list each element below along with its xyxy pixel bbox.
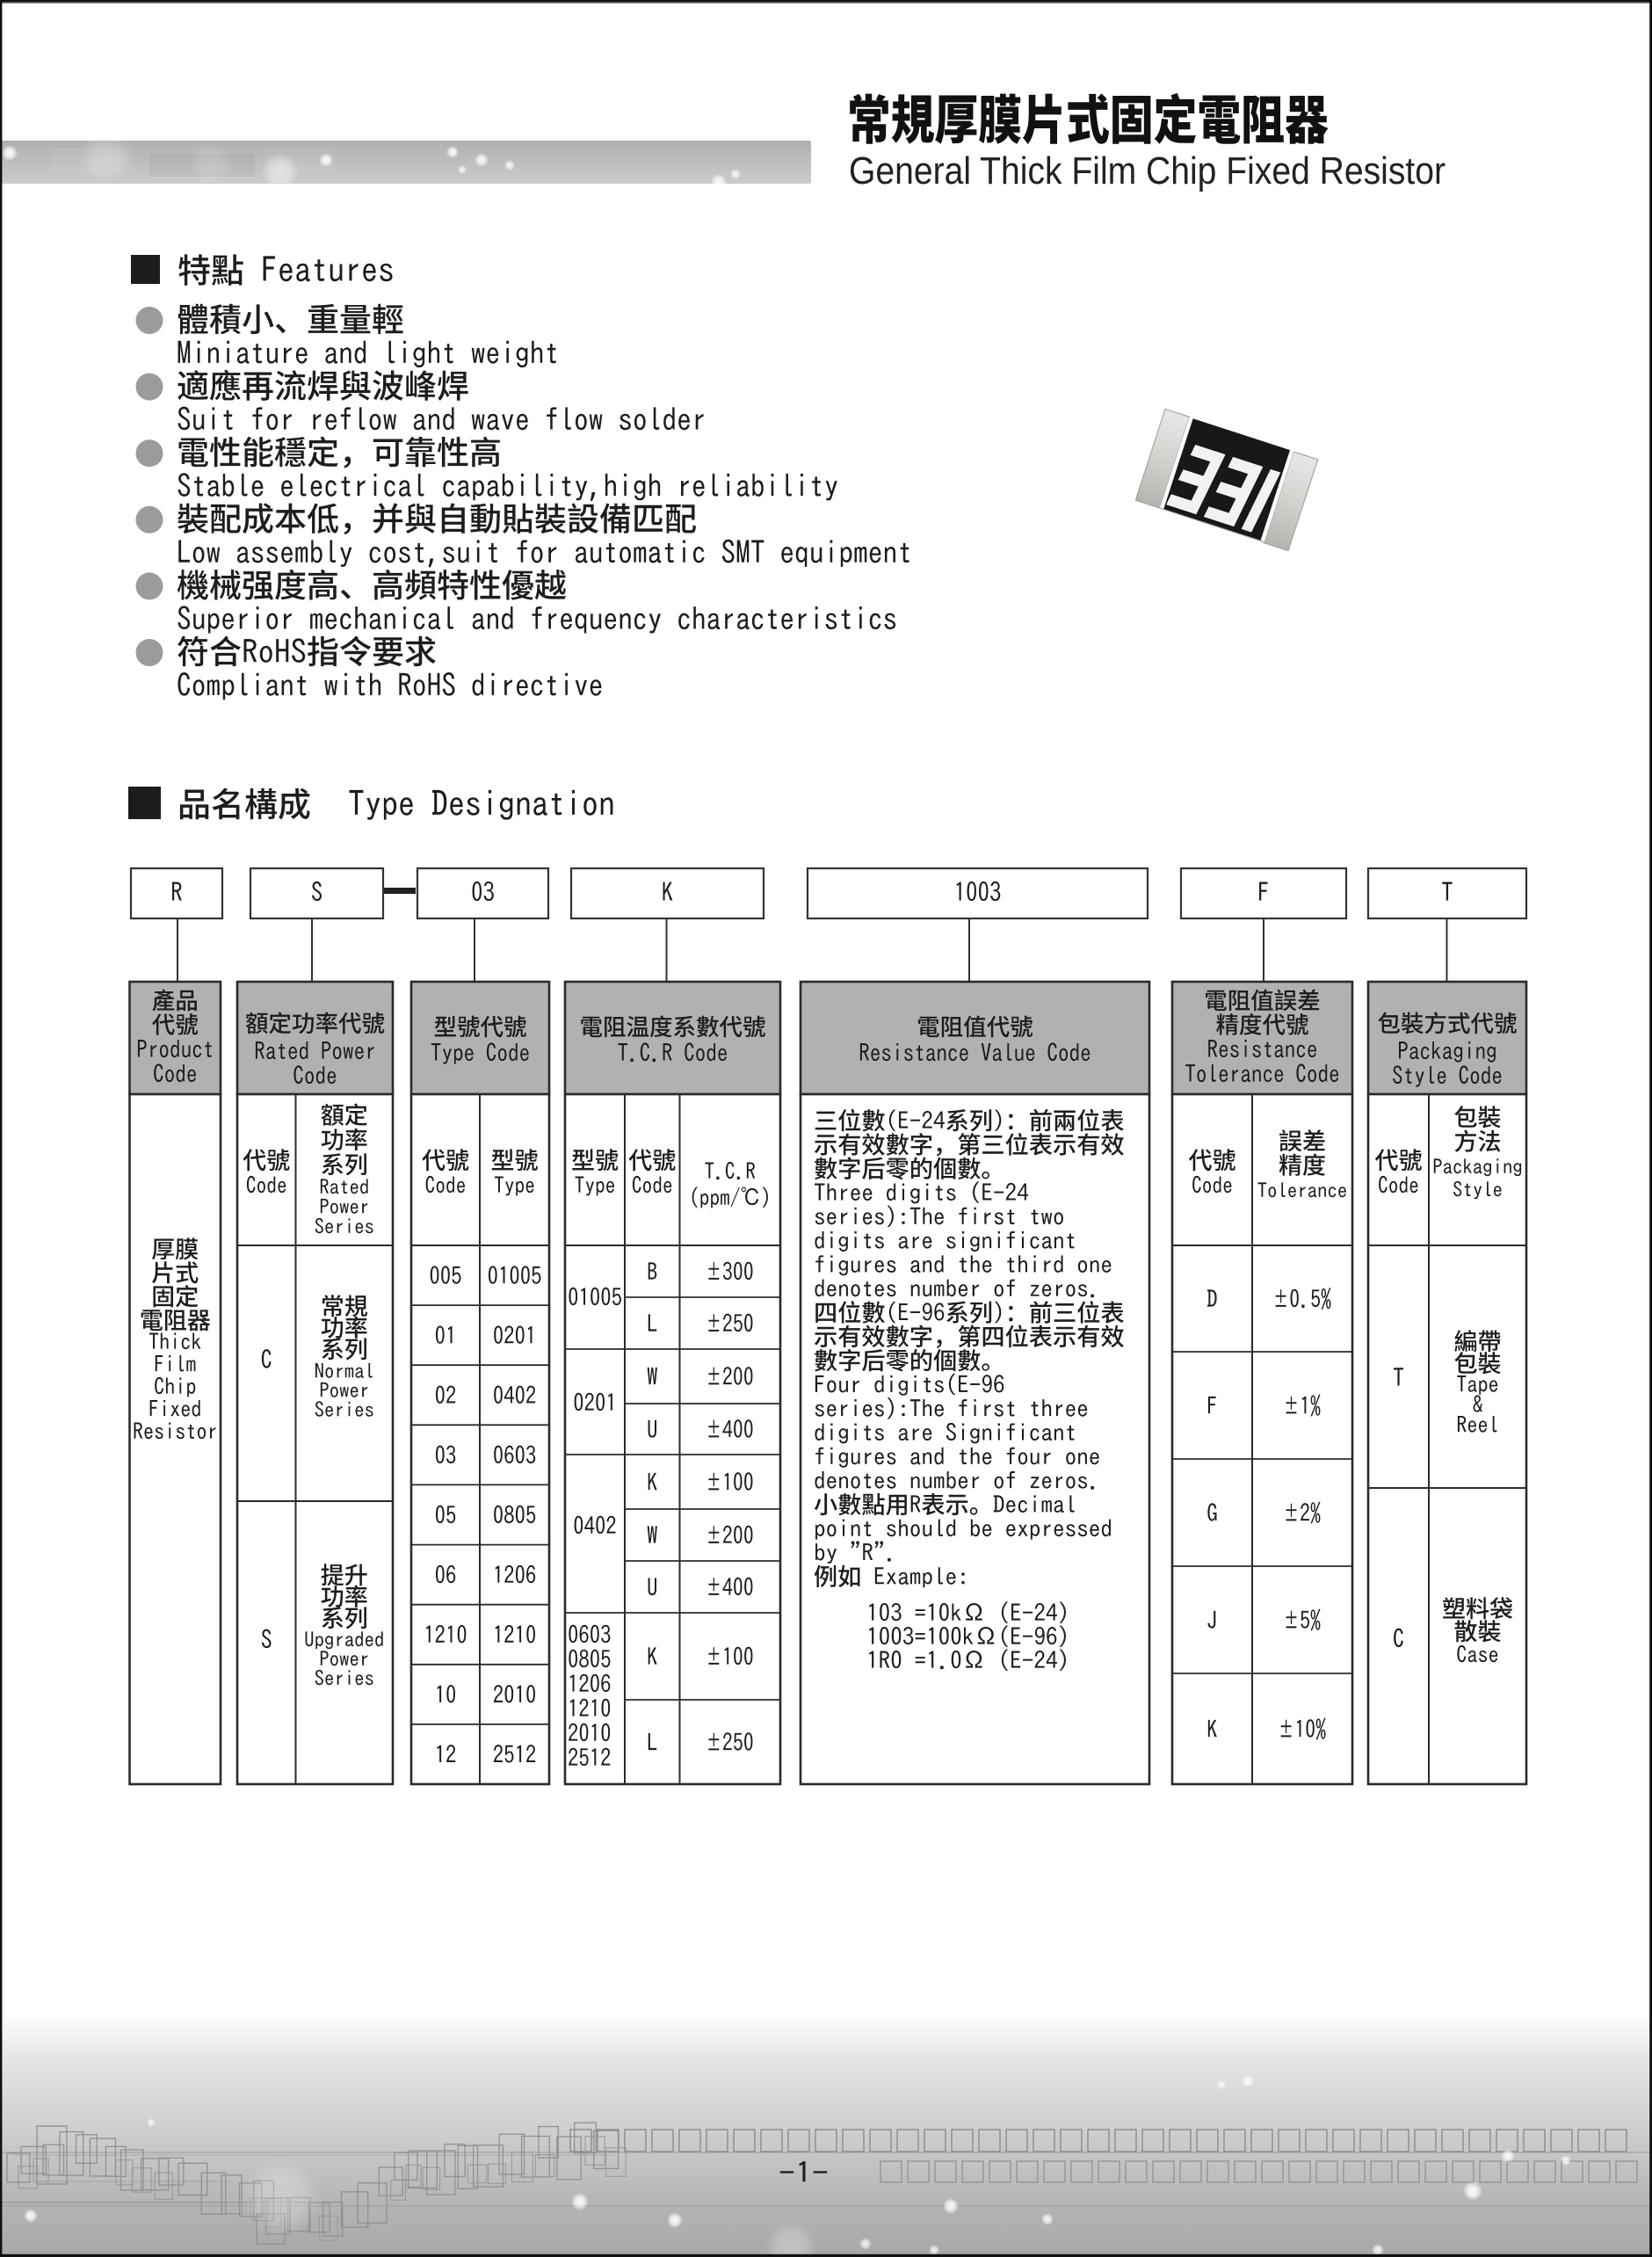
svg-text:General Thick Film Chip Fixed: General Thick Film Chip Fixed Resistor bbox=[849, 149, 1445, 192]
